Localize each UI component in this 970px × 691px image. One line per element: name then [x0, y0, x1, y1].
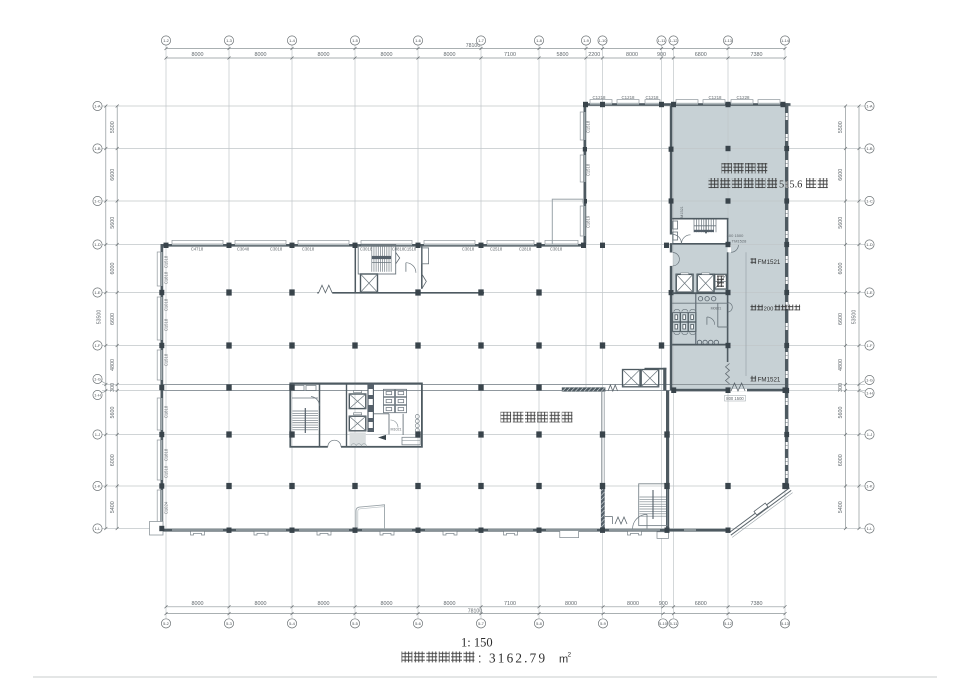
- svg-text:1-3: 1-3: [226, 38, 233, 43]
- svg-text:1-A: 1-A: [94, 104, 101, 109]
- svg-text:1-D: 1-D: [866, 242, 873, 247]
- svg-text:200: 200: [764, 306, 774, 312]
- svg-text:C1518: C1518: [164, 318, 169, 331]
- svg-text:6000: 6000: [838, 263, 844, 275]
- svg-text:1-J: 1-J: [95, 432, 101, 437]
- svg-text:1-L: 1-L: [95, 526, 102, 531]
- svg-text:5-2: 5-2: [163, 621, 170, 626]
- svg-text:4800: 4800: [838, 359, 844, 371]
- svg-text:300 1500: 300 1500: [727, 233, 744, 238]
- svg-text:C1518: C1518: [164, 465, 169, 478]
- svg-text:1-10: 1-10: [598, 38, 607, 43]
- svg-text:C1518: C1518: [586, 120, 591, 133]
- svg-text:C2818: C2818: [519, 247, 532, 252]
- svg-text:C3018: C3018: [302, 247, 315, 252]
- svg-text:3162.79: 3162.79: [489, 651, 547, 666]
- svg-text:5-3: 5-3: [226, 621, 233, 626]
- svg-text:C1518: C1518: [164, 353, 169, 366]
- svg-text:5800: 5800: [557, 52, 569, 58]
- svg-text:C1218: C1218: [593, 95, 606, 100]
- svg-text:1-D: 1-D: [94, 242, 101, 247]
- svg-text:C3048: C3048: [237, 247, 250, 252]
- svg-text:M1021: M1021: [391, 428, 402, 432]
- svg-text:5600: 5600: [838, 217, 844, 229]
- svg-text:8000: 8000: [255, 52, 267, 58]
- svg-text:8000: 8000: [565, 601, 577, 607]
- svg-text:7100: 7100: [504, 52, 516, 58]
- svg-text:5-11: 5-11: [670, 621, 678, 626]
- svg-text:5400: 5400: [838, 501, 844, 513]
- svg-text:5-10: 5-10: [659, 621, 668, 626]
- svg-text:C1518: C1518: [404, 247, 417, 252]
- svg-text:TM1528: TM1528: [732, 239, 747, 244]
- svg-text:1-H: 1-H: [866, 391, 873, 396]
- svg-text:6600: 6600: [838, 313, 844, 325]
- svg-text:1-7: 1-7: [478, 38, 485, 43]
- svg-text:1-B: 1-B: [94, 146, 101, 151]
- svg-text:5500: 5500: [838, 121, 844, 133]
- svg-text:1-K: 1-K: [866, 484, 873, 489]
- svg-text:5400: 5400: [110, 501, 116, 513]
- svg-text:1-6: 1-6: [415, 38, 422, 43]
- svg-text:6000: 6000: [838, 454, 844, 466]
- svg-text:5-6: 5-6: [415, 621, 422, 626]
- svg-text:1-E: 1-E: [866, 290, 873, 295]
- svg-text:53500: 53500: [852, 310, 858, 325]
- svg-text:5-12: 5-12: [724, 621, 733, 626]
- svg-text:C1218: C1218: [622, 95, 635, 100]
- svg-text:5-4: 5-4: [289, 621, 296, 626]
- svg-text:C3018: C3018: [270, 247, 283, 252]
- svg-text:6600: 6600: [110, 169, 116, 181]
- svg-text:8000: 8000: [444, 601, 456, 607]
- svg-text:1: 150: 1: 150: [461, 636, 493, 650]
- svg-text:1-5: 1-5: [352, 38, 359, 43]
- svg-text:C1518: C1518: [164, 255, 169, 268]
- svg-text:53500: 53500: [97, 310, 103, 325]
- svg-text:C1228: C1228: [737, 95, 750, 100]
- svg-text:8000: 8000: [192, 601, 204, 607]
- svg-text:6600: 6600: [110, 313, 116, 325]
- svg-text:C4718: C4718: [191, 247, 204, 252]
- svg-text:C2518: C2518: [490, 247, 503, 252]
- svg-text:5-5: 5-5: [352, 621, 359, 626]
- svg-text:1-14: 1-14: [781, 38, 790, 43]
- svg-text:M1521: M1521: [680, 206, 684, 218]
- svg-text:FM1521: FM1521: [758, 259, 781, 266]
- svg-text:1-11: 1-11: [658, 38, 666, 43]
- svg-text:8000: 8000: [444, 52, 456, 58]
- svg-text:1-9: 1-9: [583, 38, 590, 43]
- svg-text:1-J: 1-J: [867, 432, 873, 437]
- svg-text:5-8: 5-8: [536, 621, 543, 626]
- svg-text:C1218: C1218: [709, 95, 722, 100]
- svg-text:300: 300: [110, 383, 116, 392]
- svg-text:5500: 5500: [110, 121, 116, 133]
- svg-text:6000: 6000: [110, 454, 116, 466]
- svg-text:5-9: 5-9: [600, 621, 607, 626]
- svg-text:1-B: 1-B: [866, 146, 873, 151]
- svg-text:1-H: 1-H: [94, 393, 101, 398]
- svg-text:C1819: C1819: [586, 215, 591, 228]
- svg-text:2: 2: [568, 652, 572, 659]
- svg-text:1-E: 1-E: [94, 290, 101, 295]
- svg-text:1-C: 1-C: [94, 199, 101, 204]
- svg-text:5-7: 5-7: [478, 621, 485, 626]
- svg-text:C1024: C1024: [164, 501, 169, 514]
- svg-text:C3018: C3018: [550, 247, 563, 252]
- svg-text:800 1500: 800 1500: [726, 396, 744, 401]
- svg-text:C1518: C1518: [586, 163, 591, 176]
- svg-text:4800: 4800: [110, 359, 116, 371]
- svg-text:7380: 7380: [751, 52, 763, 58]
- svg-text:1-G: 1-G: [866, 378, 873, 383]
- svg-text:1-F: 1-F: [867, 343, 874, 348]
- svg-text:6000: 6000: [110, 263, 116, 275]
- svg-text:1-4: 1-4: [289, 38, 296, 43]
- svg-text:78100: 78100: [468, 608, 483, 614]
- svg-text:C3018: C3018: [360, 247, 373, 252]
- svg-text:515.6: 515.6: [779, 179, 802, 190]
- svg-text:1-K: 1-K: [94, 484, 101, 489]
- svg-text:900: 900: [659, 601, 668, 607]
- svg-text:5600: 5600: [838, 407, 844, 419]
- svg-text:C1218: C1218: [646, 95, 659, 100]
- svg-text:8000: 8000: [381, 52, 393, 58]
- svg-text:8000: 8000: [381, 601, 393, 607]
- svg-text:C3018: C3018: [462, 247, 475, 252]
- svg-text:7100: 7100: [504, 601, 516, 607]
- svg-text:1-2: 1-2: [163, 38, 170, 43]
- svg-text:C1818: C1818: [164, 448, 169, 461]
- svg-text:6800: 6800: [695, 52, 707, 58]
- svg-text:8000: 8000: [255, 601, 267, 607]
- svg-text:C1018: C1018: [164, 298, 169, 311]
- svg-text::: :: [478, 652, 481, 666]
- svg-text:8000: 8000: [627, 601, 639, 607]
- svg-text:FM1521: FM1521: [758, 377, 781, 384]
- svg-text:8000: 8000: [318, 601, 330, 607]
- svg-text:1-A: 1-A: [866, 104, 873, 109]
- svg-text:8000: 8000: [192, 52, 204, 58]
- svg-text:1-C: 1-C: [866, 199, 873, 204]
- svg-text:5-13: 5-13: [781, 621, 790, 626]
- svg-text:1-8: 1-8: [536, 38, 543, 43]
- svg-text:C1818: C1818: [164, 405, 169, 418]
- svg-text:5600: 5600: [110, 407, 116, 419]
- svg-text:1-G: 1-G: [94, 377, 101, 382]
- svg-text:M0821: M0821: [711, 307, 722, 311]
- svg-text:300: 300: [838, 383, 844, 392]
- svg-text:7380: 7380: [751, 601, 763, 607]
- svg-text:C1818: C1818: [164, 271, 169, 284]
- svg-text:1-L: 1-L: [867, 526, 874, 531]
- svg-text:8000: 8000: [626, 52, 638, 58]
- svg-text:2200: 2200: [588, 52, 600, 58]
- svg-text:900: 900: [657, 52, 666, 58]
- svg-text:5600: 5600: [110, 217, 116, 229]
- svg-text:6600: 6600: [838, 169, 844, 181]
- svg-text:1-F: 1-F: [95, 343, 102, 348]
- svg-text:8000: 8000: [318, 52, 330, 58]
- svg-text:6800: 6800: [695, 601, 707, 607]
- svg-text:1-13: 1-13: [724, 38, 733, 43]
- svg-text:1-12: 1-12: [669, 38, 678, 43]
